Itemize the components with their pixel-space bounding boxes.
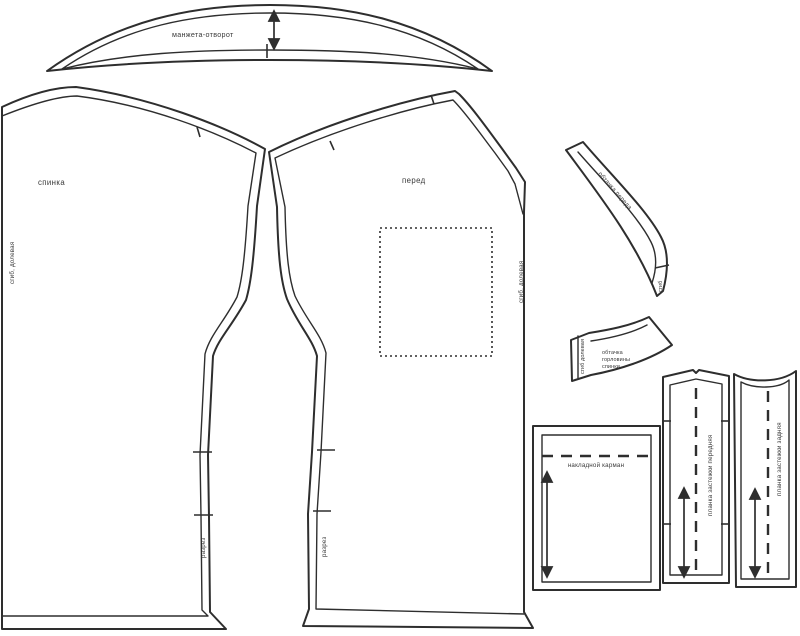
- back-neck-facing-label-line1: обтачка: [602, 350, 624, 356]
- front-outline: [269, 91, 533, 628]
- front-placket-label: планка застежки передняя: [707, 435, 714, 516]
- back-placket-outline: [734, 371, 796, 587]
- patch-pocket-piece: накладной карман: [533, 426, 660, 590]
- back-neck-facing-piece: сгиб долевая обтачка горловины спинки: [571, 317, 672, 381]
- back-neck-facing-outline: [571, 317, 672, 381]
- back-placket-label: планка застежки задняя: [776, 422, 783, 496]
- front-grain-label: сгиб, долевая: [518, 261, 525, 303]
- cuff-lapel-piece: манжета-отворот: [47, 5, 492, 71]
- cuff-lapel-label: манжета-отворот: [172, 30, 234, 39]
- front-piece: перед сгиб, долевая разрез: [269, 91, 533, 628]
- back-slit-label: разрез: [200, 538, 207, 558]
- back-outline: [2, 87, 265, 629]
- front-slit-label: разрез: [321, 537, 328, 557]
- back-neck-facing-label-line2: горловины: [602, 357, 630, 363]
- front-facing-outline: [566, 142, 667, 296]
- back-neck-facing-label-line3: спинки: [602, 364, 620, 370]
- back-label: спинка: [38, 178, 65, 187]
- back-piece: спинка сгиб, долевая разрез: [2, 87, 265, 629]
- front-placket-piece: планка застежки передняя: [663, 370, 729, 583]
- cuff-lapel-outline: [47, 5, 492, 71]
- front-facing-fold-label: сгиб: [658, 281, 664, 292]
- pocket-label: накладной карман: [568, 462, 624, 469]
- front-facing-piece: обтачка переда сгиб: [566, 142, 669, 296]
- front-placket-outline: [663, 370, 729, 583]
- front-label: перед: [402, 176, 426, 185]
- pattern-canvas: манжета-отворот спинка сгиб, долевая раз…: [0, 0, 800, 636]
- back-neck-facing-grain-label: сгиб долевая: [580, 339, 586, 374]
- pocket-outline: [533, 426, 660, 590]
- back-grain-label: сгиб, долевая: [9, 242, 16, 284]
- pattern-sheet: манжета-отворот спинка сгиб, долевая раз…: [0, 0, 800, 636]
- back-placket-piece: планка застежки задняя: [734, 371, 796, 587]
